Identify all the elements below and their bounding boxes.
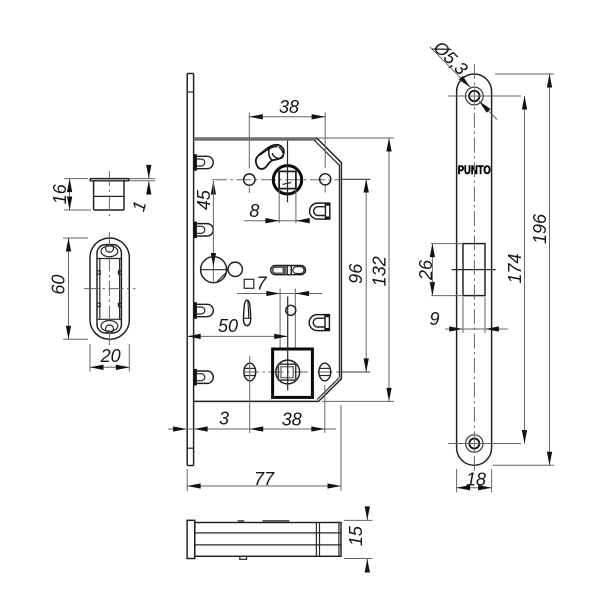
svg-text:1: 1 — [128, 199, 150, 214]
svg-text:132: 132 — [370, 256, 390, 286]
svg-text:18: 18 — [466, 469, 486, 489]
svg-text:96: 96 — [346, 263, 366, 284]
svg-text:Ø5,3: Ø5,3 — [429, 36, 471, 78]
svg-text:60: 60 — [48, 275, 68, 295]
svg-text:196: 196 — [530, 213, 550, 244]
svg-text:77: 77 — [254, 469, 275, 489]
svg-text:38: 38 — [279, 97, 299, 117]
svg-text:3: 3 — [219, 409, 229, 429]
svg-text:8: 8 — [249, 201, 259, 221]
svg-text:26: 26 — [416, 259, 436, 281]
svg-text:20: 20 — [100, 346, 121, 366]
svg-text:50: 50 — [218, 316, 238, 336]
svg-text:174: 174 — [505, 254, 525, 284]
svg-text:15: 15 — [346, 525, 366, 546]
svg-text:9: 9 — [429, 309, 439, 329]
svg-text:7: 7 — [256, 274, 267, 294]
svg-text:45: 45 — [194, 189, 214, 210]
svg-text:38: 38 — [282, 410, 302, 430]
svg-text:16: 16 — [50, 183, 70, 204]
